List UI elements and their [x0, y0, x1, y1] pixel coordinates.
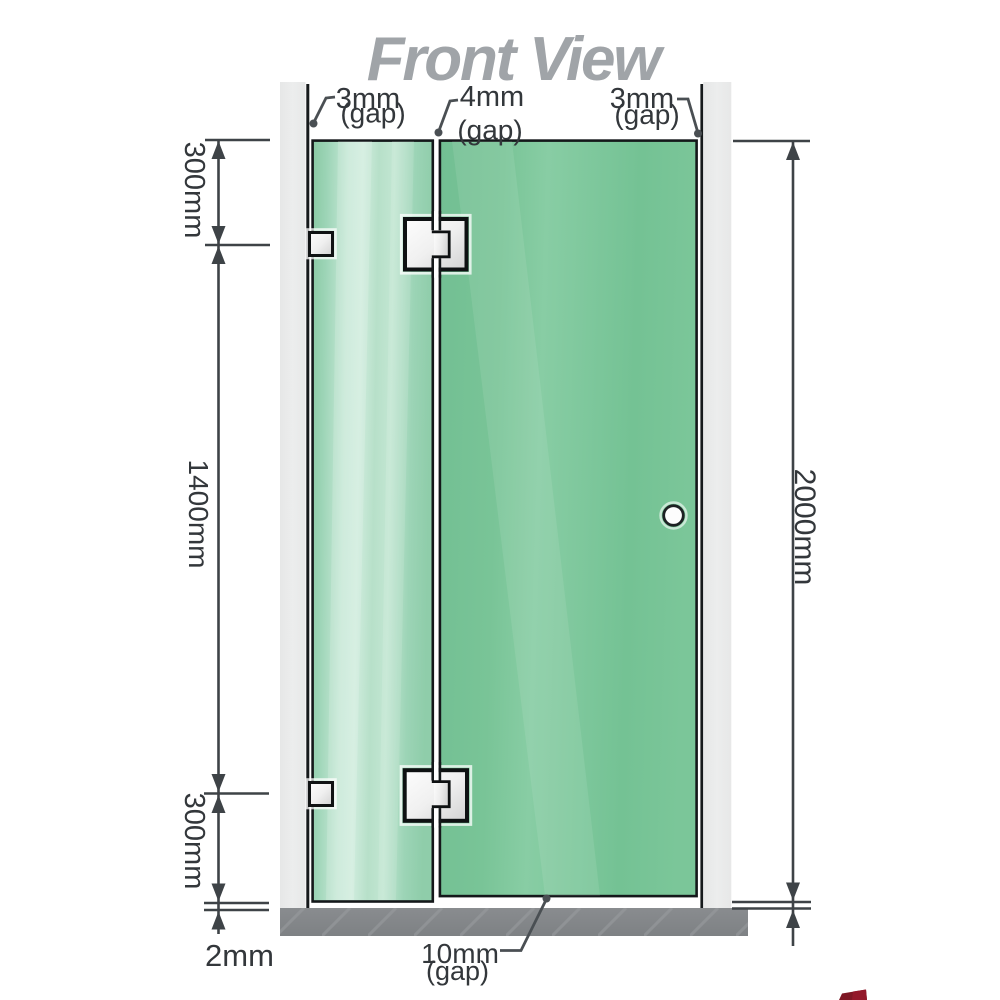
svg-text:4mm: 4mm	[460, 81, 524, 113]
svg-text:(gap): (gap)	[426, 956, 489, 986]
svg-text:(gap): (gap)	[340, 98, 405, 129]
svg-text:(gap): (gap)	[614, 99, 679, 130]
svg-text:2mm: 2mm	[205, 938, 274, 973]
svg-text:2000mm: 2000mm	[788, 469, 821, 586]
svg-text:300mm: 300mm	[178, 793, 210, 890]
svg-text:(gap): (gap)	[457, 115, 522, 146]
svg-text:1400mm: 1400mm	[183, 460, 214, 569]
svg-text:300mm: 300mm	[178, 142, 210, 239]
